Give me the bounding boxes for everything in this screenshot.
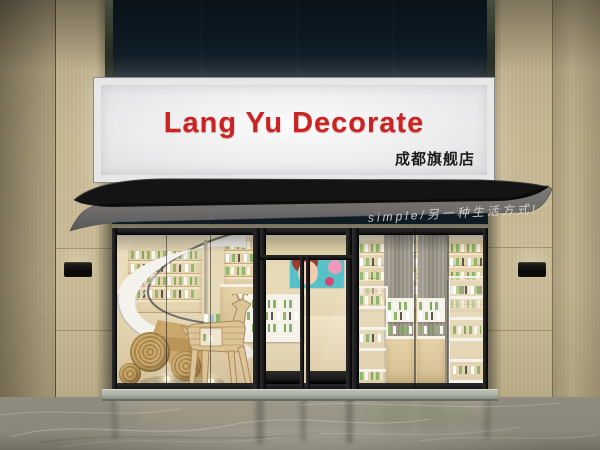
glass-seam <box>210 228 211 391</box>
product-row <box>453 366 481 374</box>
display-stand-2 <box>417 298 445 390</box>
dark-fascia-panel <box>105 0 495 84</box>
entrance-awning: simple/另一种生活方式! <box>58 170 554 244</box>
glass-seam <box>414 228 416 391</box>
frame-right-jamb <box>483 228 488 392</box>
fascia-seam <box>393 0 394 84</box>
entrance-step <box>102 389 498 401</box>
brand-name-text: Lang Yu Decorate <box>101 107 487 140</box>
product-row <box>388 312 412 320</box>
product-row <box>360 296 382 304</box>
wicker-disc <box>119 363 141 385</box>
product-row <box>453 286 481 294</box>
mullion-left-of-door <box>253 228 260 392</box>
storefront-scene: Lang Yu Decorate 成都旗舰店 simple/另一种生活方式! <box>0 0 600 450</box>
display-stand-1 <box>386 298 414 390</box>
pillar-top-shadow <box>488 0 600 70</box>
product-row <box>453 326 481 334</box>
pillar-side-face <box>487 0 495 84</box>
glass-seam <box>447 228 449 391</box>
wall-sconce-left <box>64 262 92 277</box>
product-row <box>388 302 412 310</box>
product-row <box>360 334 382 342</box>
stand-cabinet <box>386 336 414 385</box>
wall-sconce-right <box>518 262 546 277</box>
poster-flower-shape <box>328 260 342 274</box>
mullion-right-of-door <box>352 228 359 392</box>
product-row <box>419 312 443 320</box>
product-row <box>388 326 412 334</box>
white-etagere-right <box>448 276 487 392</box>
shop-signboard: Lang Yu Decorate 成都旗舰店 <box>94 78 494 182</box>
product-row <box>419 326 443 334</box>
frame-left-jamb <box>112 228 117 392</box>
floor-vignette <box>0 430 600 450</box>
pillar-top-shadow <box>0 0 112 70</box>
door-bottom-rail <box>266 371 300 384</box>
storefront-glazing <box>112 224 488 400</box>
door-bottom-rail <box>310 371 346 384</box>
pillar-side-face <box>105 0 113 84</box>
store-subtitle-text: 成都旗舰店 <box>395 148 475 169</box>
beauty-poster <box>290 257 344 288</box>
stand-cabinet <box>417 336 445 385</box>
glass-seam <box>166 228 167 391</box>
marble-floor <box>0 397 600 450</box>
fascia-seam <box>201 0 202 84</box>
door-center-stile-left[interactable] <box>300 257 304 388</box>
floor-lamp <box>164 376 170 382</box>
product-row <box>419 302 443 310</box>
white-etagere-left <box>356 286 388 392</box>
door-frame-left <box>260 228 266 392</box>
product-row <box>360 372 382 380</box>
door-center-stile-right[interactable] <box>306 257 310 388</box>
fascia-seam <box>297 0 298 84</box>
poster-flower-shape <box>325 277 334 286</box>
